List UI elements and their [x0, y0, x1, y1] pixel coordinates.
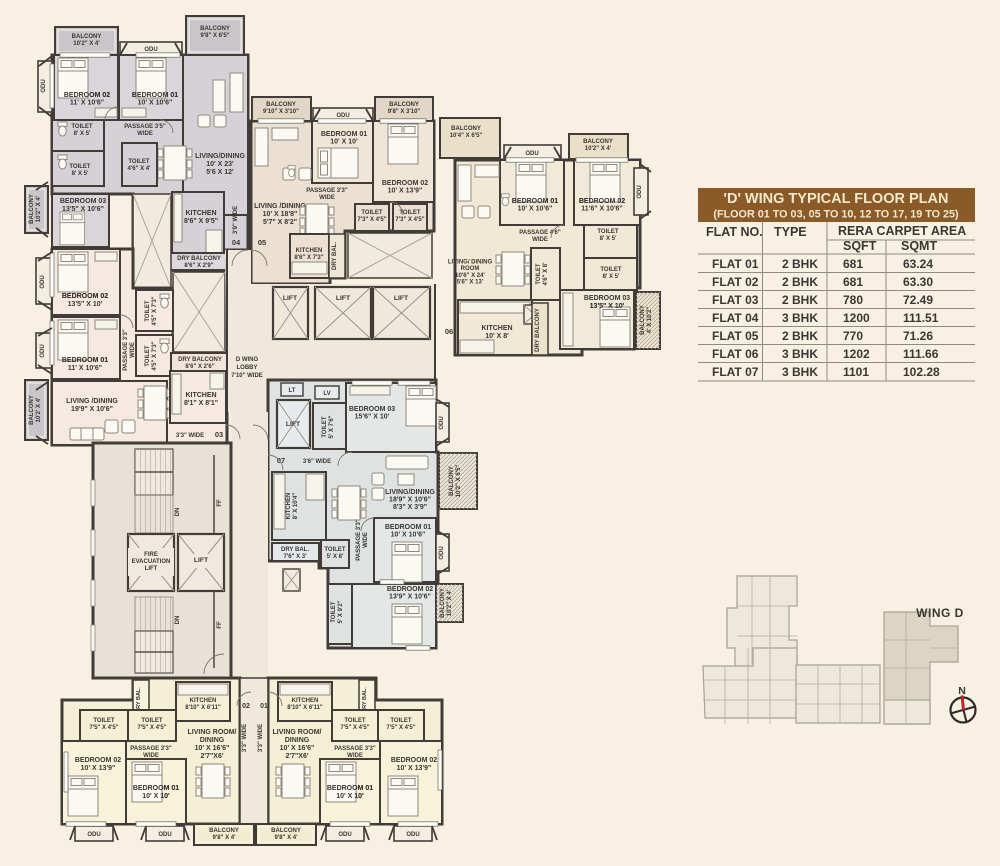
svg-text:8' X 10'4": 8' X 10'4": [293, 493, 299, 520]
svg-text:DINING: DINING: [200, 737, 225, 744]
svg-text:3 BHK: 3 BHK: [782, 365, 818, 379]
svg-text:10' X 10': 10' X 10': [330, 139, 358, 146]
svg-text:2 BHK: 2 BHK: [782, 293, 818, 307]
svg-text:DRY BAL.: DRY BAL.: [362, 687, 368, 713]
svg-text:KITCHEN: KITCHEN: [481, 325, 512, 332]
svg-text:10' X 10': 10' X 10': [336, 793, 364, 800]
svg-text:SQMT: SQMT: [901, 239, 937, 253]
svg-text:TOILET: TOILET: [71, 124, 93, 130]
svg-text:1101: 1101: [843, 365, 869, 379]
svg-text:LIVING/DINING: LIVING/DINING: [195, 153, 245, 160]
svg-text:06: 06: [445, 327, 453, 336]
svg-text:TOILET: TOILET: [324, 547, 346, 553]
svg-text:FF: FF: [217, 499, 223, 507]
svg-text:ODU: ODU: [87, 832, 100, 838]
svg-text:TOILET: TOILET: [344, 718, 366, 724]
svg-text:BEDROOM 01: BEDROOM 01: [385, 524, 431, 531]
svg-text:'D' WING TYPICAL FLOOR PLAN: 'D' WING TYPICAL FLOOR PLAN: [724, 191, 949, 207]
svg-text:WIDE: WIDE: [363, 532, 369, 548]
svg-text:9'8" X 3'10": 9'8" X 3'10": [388, 109, 421, 115]
svg-text:2'7"X6': 2'7"X6': [286, 753, 309, 760]
svg-text:7'5" X 4'5": 7'5" X 4'5": [386, 725, 415, 731]
svg-text:BEDROOM 01: BEDROOM 01: [321, 131, 367, 138]
svg-text:DN: DN: [175, 508, 181, 517]
svg-text:02: 02: [242, 703, 250, 710]
svg-text:4'6" X 8': 4'6" X 8': [543, 262, 549, 286]
svg-text:WIDE: WIDE: [137, 131, 153, 137]
svg-text:FF: FF: [217, 621, 223, 629]
svg-text:10' X 16'6": 10' X 16'6": [280, 745, 315, 752]
svg-text:TOILET: TOILET: [145, 300, 151, 322]
svg-text:10' X 10'6": 10' X 10'6": [518, 206, 553, 213]
svg-text:9'8" X 6'5": 9'8" X 6'5": [200, 33, 229, 39]
svg-text:13'5" X 10': 13'5" X 10': [590, 303, 625, 310]
svg-text:LIVING /DINING: LIVING /DINING: [254, 203, 306, 210]
svg-text:BALCONY: BALCONY: [583, 139, 613, 145]
svg-text:FLAT 07: FLAT 07: [712, 365, 759, 379]
svg-text:TOILET: TOILET: [141, 718, 163, 724]
svg-text:3'3" WIDE: 3'3" WIDE: [176, 433, 204, 439]
svg-text:PASSAGE 3'3": PASSAGE 3'3": [130, 746, 172, 752]
svg-text:DRY BALCONY: DRY BALCONY: [535, 308, 541, 352]
svg-text:BALCONY: BALCONY: [200, 26, 230, 32]
svg-text:TOILET: TOILET: [331, 601, 337, 623]
svg-text:KITCHEN: KITCHEN: [292, 698, 319, 704]
svg-text:TOILET: TOILET: [93, 718, 115, 724]
svg-text:10' X 13'9": 10' X 13'9": [388, 188, 423, 195]
svg-text:TOILET: TOILET: [390, 718, 412, 724]
svg-text:FLAT 02: FLAT 02: [712, 275, 759, 289]
svg-text:LV: LV: [323, 391, 330, 397]
svg-text:PASSAGE 3'3": PASSAGE 3'3": [334, 746, 376, 752]
svg-text:10'2" X 4': 10'2" X 4': [447, 589, 453, 616]
svg-text:10' X 13'9": 10' X 13'9": [81, 765, 116, 772]
svg-text:DRY BAL.: DRY BAL.: [281, 547, 309, 553]
svg-text:LIVING/DINING: LIVING/DINING: [385, 489, 435, 496]
svg-text:5'6" X 13': 5'6" X 13': [457, 280, 484, 286]
svg-text:FLAT 04: FLAT 04: [712, 311, 759, 325]
svg-text:KITCHEN: KITCHEN: [185, 392, 216, 399]
svg-text:10' X 13'9": 10' X 13'9": [397, 765, 432, 772]
svg-text:(FLOOR 01 TO 03, 05 TO 10, 12: (FLOOR 01 TO 03, 05 TO 10, 12 TO 17, 19 …: [713, 209, 959, 221]
svg-text:TOILET: TOILET: [361, 210, 383, 216]
svg-text:KITCHEN: KITCHEN: [286, 493, 292, 520]
svg-text:01: 01: [260, 703, 268, 710]
svg-text:3'3" WIDE: 3'3" WIDE: [242, 724, 248, 752]
svg-text:BEDROOM 01: BEDROOM 01: [512, 198, 558, 205]
svg-text:10' X 23': 10' X 23': [206, 161, 234, 168]
svg-text:BEDROOM 02: BEDROOM 02: [387, 586, 433, 593]
svg-text:4'5" X 7'3": 4'5" X 7'3": [152, 341, 158, 370]
svg-text:ODU: ODU: [338, 832, 351, 838]
svg-text:10'6" X 24': 10'6" X 24': [455, 273, 485, 279]
svg-text:PASSAGE 3'3": PASSAGE 3'3": [356, 519, 362, 561]
svg-text:1200: 1200: [843, 311, 870, 325]
svg-text:KITCHEN: KITCHEN: [296, 248, 323, 254]
svg-text:BEDROOM 02: BEDROOM 02: [64, 92, 110, 99]
svg-text:BEDROOM 03: BEDROOM 03: [60, 198, 106, 205]
svg-text:TOILET: TOILET: [69, 164, 91, 170]
svg-text:10' X 10'6": 10' X 10'6": [138, 100, 173, 107]
svg-text:ODU: ODU: [525, 151, 538, 157]
svg-text:111.66: 111.66: [903, 347, 939, 361]
svg-text:LIVING ROOM/: LIVING ROOM/: [273, 729, 322, 736]
svg-text:10' X 8': 10' X 8': [485, 333, 509, 340]
svg-text:BALCONY: BALCONY: [440, 588, 446, 618]
svg-text:ODU: ODU: [439, 416, 445, 429]
svg-text:FIRE: FIRE: [144, 552, 158, 558]
svg-text:TOILET: TOILET: [536, 263, 542, 285]
svg-text:DRY BAL.: DRY BAL.: [332, 242, 338, 270]
svg-text:LIFT: LIFT: [336, 295, 351, 302]
svg-text:BALCONY: BALCONY: [389, 102, 419, 108]
svg-text:EVACUATION: EVACUATION: [132, 559, 171, 565]
svg-text:8'6" X 2'9": 8'6" X 2'9": [184, 263, 213, 269]
svg-text:DRY BAL.: DRY BAL.: [136, 687, 142, 713]
svg-text:DINING: DINING: [285, 737, 310, 744]
svg-text:TOILET: TOILET: [322, 416, 328, 438]
svg-text:8' X 5': 8' X 5': [74, 131, 91, 137]
svg-text:FLAT NO.: FLAT NO.: [706, 225, 763, 239]
svg-text:ODU: ODU: [637, 185, 643, 198]
svg-text:BALCONY: BALCONY: [209, 828, 239, 834]
svg-text:4'5" X 7'3": 4'5" X 7'3": [152, 296, 158, 325]
svg-text:BALCONY: BALCONY: [29, 395, 35, 425]
svg-text:7'3" X 4'5": 7'3" X 4'5": [357, 217, 386, 223]
svg-text:2'7"X6': 2'7"X6': [201, 753, 224, 760]
svg-text:BEDROOM 02: BEDROOM 02: [382, 180, 428, 187]
svg-text:5'6 X 12': 5'6 X 12': [206, 169, 234, 176]
svg-text:11'6" X 10'6": 11'6" X 10'6": [581, 206, 623, 213]
svg-text:5'7" X 8'2": 5'7" X 8'2": [263, 219, 297, 226]
svg-text:WIDE: WIDE: [319, 195, 335, 201]
svg-text:TOILET: TOILET: [600, 267, 622, 273]
svg-text:BEDROOM 01: BEDROOM 01: [132, 92, 178, 99]
svg-text:BALCONY: BALCONY: [640, 305, 646, 335]
svg-text:ODU: ODU: [158, 832, 171, 838]
svg-text:ROOM: ROOM: [461, 266, 480, 272]
svg-text:LOBBY: LOBBY: [237, 365, 258, 371]
svg-text:KITCHEN: KITCHEN: [190, 698, 217, 704]
svg-text:KITCHEN: KITCHEN: [185, 210, 216, 217]
svg-text:63.30: 63.30: [903, 275, 933, 289]
svg-text:TOILET: TOILET: [128, 159, 150, 165]
svg-text:681: 681: [843, 275, 863, 289]
svg-text:05: 05: [258, 238, 266, 247]
svg-text:71.26: 71.26: [903, 329, 933, 343]
svg-text:10' X 18'8": 10' X 18'8": [263, 211, 298, 218]
svg-text:TOILET: TOILET: [145, 345, 151, 367]
svg-text:BEDROOM 02: BEDROOM 02: [75, 757, 121, 764]
svg-text:07: 07: [277, 456, 285, 465]
svg-text:N: N: [958, 685, 966, 697]
svg-text:2 BHK: 2 BHK: [782, 275, 818, 289]
svg-text:DRY BALCONY: DRY BALCONY: [177, 256, 221, 262]
svg-text:BALCONY: BALCONY: [29, 194, 35, 224]
svg-text:DN: DN: [175, 616, 181, 625]
svg-text:7'5" X 4'5": 7'5" X 4'5": [340, 725, 369, 731]
svg-text:ODU: ODU: [144, 47, 157, 53]
svg-text:72.49: 72.49: [903, 293, 933, 307]
svg-text:WIDE: WIDE: [532, 237, 548, 243]
svg-text:BEDROOM 02: BEDROOM 02: [391, 757, 437, 764]
svg-text:111.51: 111.51: [903, 311, 939, 325]
svg-text:5' X 9'2": 5' X 9'2": [338, 600, 344, 623]
svg-text:9'8" X 4': 9'8" X 4': [212, 835, 236, 841]
svg-text:BEDROOM 01: BEDROOM 01: [327, 785, 373, 792]
svg-text:PASSAGE 3'3": PASSAGE 3'3": [123, 329, 129, 371]
svg-text:LIFT: LIFT: [286, 421, 301, 428]
svg-text:10' X 10': 10' X 10': [142, 793, 170, 800]
svg-text:FLAT 01: FLAT 01: [712, 257, 759, 271]
svg-text:ODU: ODU: [406, 832, 419, 838]
svg-text:13'5" X 10': 13'5" X 10': [68, 301, 103, 308]
svg-text:3'9" WIDE: 3'9" WIDE: [233, 206, 239, 234]
svg-text:BALCONY: BALCONY: [449, 466, 455, 496]
svg-text:8'10" X 6'11": 8'10" X 6'11": [287, 705, 323, 711]
svg-text:4'6" X 4': 4'6" X 4': [127, 166, 151, 172]
svg-text:1202: 1202: [843, 347, 870, 361]
svg-text:10' X 10'6": 10' X 10'6": [391, 532, 426, 539]
svg-text:780: 780: [843, 293, 863, 307]
svg-text:7'10" WIDE: 7'10" WIDE: [231, 373, 263, 379]
svg-text:BEDROOM 02: BEDROOM 02: [579, 198, 625, 205]
svg-text:5' X 8': 5' X 8': [327, 554, 344, 560]
svg-text:FLAT 05: FLAT 05: [712, 329, 759, 343]
svg-text:8'1" X 8'1": 8'1" X 8'1": [184, 400, 218, 407]
svg-text:8' X 5': 8' X 5': [600, 236, 617, 242]
svg-text:2 BHK: 2 BHK: [782, 257, 818, 271]
svg-text:BALCONY: BALCONY: [266, 102, 296, 108]
svg-text:BEDROOM 01: BEDROOM 01: [62, 357, 108, 364]
svg-text:3 BHK: 3 BHK: [782, 311, 818, 325]
svg-text:BEDROOM 03: BEDROOM 03: [349, 406, 395, 413]
svg-text:BALCONY: BALCONY: [271, 828, 301, 834]
svg-text:BALCONY: BALCONY: [72, 34, 102, 40]
svg-text:ODU: ODU: [336, 113, 349, 119]
svg-text:2 BHK: 2 BHK: [782, 329, 818, 343]
svg-text:10'2' X 4': 10'2' X 4': [36, 397, 42, 423]
svg-text:8'6" X 2'6": 8'6" X 2'6": [185, 364, 214, 370]
svg-text:FLAT 03: FLAT 03: [712, 293, 759, 307]
svg-text:8' X 5': 8' X 5': [603, 274, 620, 280]
svg-text:LIFT: LIFT: [194, 557, 209, 564]
svg-text:D WING: D WING: [236, 357, 259, 363]
svg-text:18'9" X 10'6": 18'9" X 10'6": [389, 497, 431, 504]
svg-text:5' X 7'6": 5' X 7'6": [329, 415, 335, 438]
svg-text:PASSAGE 4'6": PASSAGE 4'6": [519, 230, 561, 236]
svg-text:8'6" X 7'3": 8'6" X 7'3": [294, 255, 323, 261]
svg-text:PASSAGE 3'5": PASSAGE 3'5": [124, 124, 166, 130]
svg-text:TYPE: TYPE: [774, 225, 807, 239]
svg-text:11' X 10'6": 11' X 10'6": [68, 365, 102, 372]
svg-text:10'2" X 4': 10'2" X 4': [73, 41, 100, 47]
svg-text:10'2" X 4': 10'2" X 4': [36, 195, 42, 222]
svg-text:7'3" X 4'5": 7'3" X 4'5": [395, 217, 424, 223]
svg-text:BEDROOM 03: BEDROOM 03: [584, 295, 630, 302]
svg-text:PASSAGE 3'3": PASSAGE 3'3": [306, 188, 348, 194]
svg-text:LIFT: LIFT: [394, 295, 409, 302]
svg-text:9'8" X 4': 9'8" X 4': [274, 835, 298, 841]
svg-text:10'2" X 6'5": 10'2" X 6'5": [456, 465, 462, 498]
svg-text:770: 770: [843, 329, 863, 343]
svg-text:LIFT: LIFT: [283, 295, 298, 302]
svg-text:RERA CARPET AREA: RERA CARPET AREA: [838, 224, 966, 238]
svg-text:BALCONY: BALCONY: [451, 126, 481, 132]
svg-text:ODU: ODU: [439, 546, 445, 559]
svg-text:FLAT 06: FLAT 06: [712, 347, 759, 361]
svg-text:8'10" X 6'11": 8'10" X 6'11": [185, 705, 221, 711]
svg-text:LIVING/ DINING: LIVING/ DINING: [448, 260, 493, 266]
svg-text:LIVING ROOM/: LIVING ROOM/: [188, 729, 237, 736]
svg-text:LIFT: LIFT: [145, 566, 158, 572]
svg-text:63.24: 63.24: [903, 257, 933, 271]
svg-text:9'10" X 3'10": 9'10" X 3'10": [263, 109, 299, 115]
svg-text:BEDROOM 02: BEDROOM 02: [62, 293, 108, 300]
svg-text:3'6" WIDE: 3'6" WIDE: [303, 459, 331, 465]
svg-text:ODU: ODU: [40, 344, 46, 357]
svg-text:7'5" X 4'5": 7'5" X 4'5": [89, 725, 118, 731]
svg-text:LT: LT: [289, 388, 296, 394]
svg-text:DRY BALCONY: DRY BALCONY: [178, 357, 222, 363]
svg-text:11' X 10'6": 11' X 10'6": [70, 100, 104, 107]
svg-text:03: 03: [215, 430, 223, 439]
svg-text:ODU: ODU: [40, 275, 46, 288]
svg-text:7'6" X 3': 7'6" X 3': [283, 554, 307, 560]
svg-text:8'6" X 9'5": 8'6" X 9'5": [184, 218, 218, 225]
svg-text:8' X 5': 8' X 5': [72, 171, 89, 177]
svg-text:102.28: 102.28: [903, 365, 940, 379]
svg-text:8'3" X 3'9": 8'3" X 3'9": [393, 504, 427, 511]
svg-text:7'5" X 4'5": 7'5" X 4'5": [137, 725, 166, 731]
svg-text:3'3" WIDE: 3'3" WIDE: [258, 724, 264, 752]
svg-text:WING D: WING D: [916, 606, 964, 620]
svg-text:ODU: ODU: [41, 79, 47, 92]
svg-text:04: 04: [232, 238, 241, 247]
svg-text:BEDROOM 01: BEDROOM 01: [133, 785, 179, 792]
svg-text:LIVING /DINING: LIVING /DINING: [66, 398, 118, 405]
svg-text:681: 681: [843, 257, 863, 271]
svg-text:4' X 10'2": 4' X 10'2": [647, 307, 653, 334]
svg-text:SQFT: SQFT: [843, 239, 877, 253]
svg-text:19'9" X 10'6": 19'9" X 10'6": [71, 406, 113, 413]
svg-text:10'2" X 4': 10'2" X 4': [585, 146, 612, 152]
svg-text:3 BHK: 3 BHK: [782, 347, 818, 361]
svg-text:10'4" X 6'5": 10'4" X 6'5": [450, 133, 483, 139]
svg-text:TOILET: TOILET: [597, 229, 619, 235]
svg-text:10' X 16'6": 10' X 16'6": [195, 745, 230, 752]
svg-text:15'6" X 10': 15'6" X 10': [355, 414, 390, 421]
svg-text:13'9" X 10'6": 13'9" X 10'6": [389, 594, 431, 601]
